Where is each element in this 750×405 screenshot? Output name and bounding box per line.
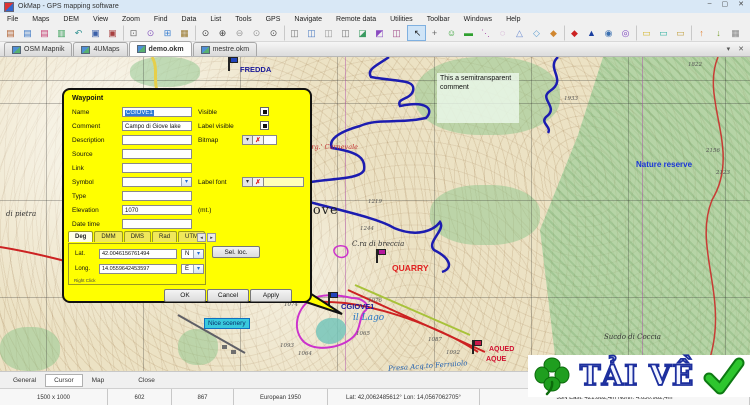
add-map-icon[interactable]: ▤ <box>19 25 36 41</box>
menu-item[interactable]: Zoom <box>115 15 147 24</box>
menu-item[interactable]: Navigate <box>287 15 329 24</box>
latitude-label: Lat. <box>75 251 85 257</box>
reload-map-icon[interactable]: ↶ <box>70 25 87 41</box>
map-tab-icon <box>137 45 146 53</box>
bitmap-clear-icon[interactable]: ✗ <box>253 135 264 145</box>
rotate-map-icon[interactable]: ◉ <box>600 25 617 41</box>
tab-scroll-left-icon[interactable]: ◂ <box>197 233 206 242</box>
map-tab-bar: OSM Mapnik 4UMaps demo.okm mestre.okm <box>0 42 750 57</box>
comment-label: Comment <box>72 123 100 130</box>
map-label: di pietra <box>6 210 36 218</box>
menu-item[interactable]: File <box>0 15 25 24</box>
latitude-input[interactable]: 42.0046156761494 <box>99 249 177 259</box>
label-font-preview <box>264 177 304 187</box>
gps-upload-icon[interactable]: ↑ <box>691 25 710 41</box>
datetime-input[interactable] <box>122 219 192 229</box>
visible-checkbox[interactable] <box>260 107 269 116</box>
status-cell: 867 <box>172 389 234 405</box>
menu-item[interactable]: Windows <box>457 15 499 24</box>
menu-bar: FileMapsDEMViewZoomFindDataListToolsGPSN… <box>0 13 750 25</box>
new-shape-icon[interactable]: ◆ <box>545 25 562 41</box>
minimize-icon[interactable]: – <box>708 0 712 8</box>
data-grid-icon[interactable]: ▦ <box>727 25 744 41</box>
symbol-label: Symbol <box>72 179 94 186</box>
select-location-button[interactable]: Sel. loc. <box>212 246 260 258</box>
datetime-label: Date time <box>72 221 100 228</box>
latitude-hemisphere-select[interactable]: N▾ <box>181 249 204 259</box>
chevron-down-icon[interactable]: ▾ <box>181 178 191 186</box>
upload-data-icon[interactable]: ◪ <box>354 25 371 41</box>
projection-icon[interactable]: ◎ <box>617 25 634 41</box>
link-input[interactable] <box>122 163 192 173</box>
open-workspace-icon[interactable]: ⊞ <box>159 25 176 41</box>
chevron-down-icon[interactable]: ▾ <box>193 250 203 258</box>
watermark-text: TẢI VỀ <box>580 356 694 396</box>
type-input[interactable] <box>122 191 192 201</box>
status-cell: 1500 x 1000 <box>0 389 108 405</box>
area-list-icon[interactable]: ◫ <box>337 25 354 41</box>
map-tab[interactable]: OSM Mapnik <box>4 42 72 56</box>
map-label: 1933 <box>564 96 578 102</box>
waypoint-list-icon[interactable]: ◫ <box>284 25 303 41</box>
label-font-label: Label font <box>198 179 227 186</box>
status-cell: European 1950 <box>234 389 328 405</box>
new-polygon-icon[interactable]: ◇ <box>528 25 545 41</box>
save-as-icon[interactable]: ▣ <box>104 25 121 41</box>
map-label: C.ra di breccia <box>352 240 404 248</box>
menu-item[interactable]: List <box>203 15 228 24</box>
menu-item[interactable]: DEM <box>56 15 86 24</box>
comment-input[interactable]: Campo di Giove lake <box>122 121 192 131</box>
tab-close-icon[interactable]: ✕ <box>738 45 744 53</box>
save-icon[interactable]: ▣ <box>87 25 104 41</box>
status-tab[interactable]: Cursor <box>45 374 83 387</box>
briefcase-icon[interactable]: ▦ <box>176 25 193 41</box>
label-font-clear-icon[interactable]: ✗ <box>253 177 264 187</box>
status-close-button[interactable]: Close <box>129 374 164 387</box>
map-tab[interactable]: mestre.okm <box>193 42 258 56</box>
new-area-icon[interactable]: △ <box>511 25 528 41</box>
chevron-down-icon[interactable]: ▾ <box>193 265 203 273</box>
waypoint-flag-aqueduct[interactable] <box>472 340 482 354</box>
map-label: il Lago <box>353 313 384 323</box>
map-label: AQUED <box>489 346 514 353</box>
map-tab-label: OSM Mapnik <box>24 46 64 53</box>
status-tab[interactable]: General <box>4 374 45 387</box>
toolbar: ▤▤▤▥↶▣▣⊡⊙⊞▦⊙⊕⊖⊙⊙◫◫◫◫◪◩◫↖+☺▬⋱◌△◇◆◆▲◉◎▭▭▭↑… <box>0 25 750 42</box>
menu-item[interactable]: Remote data <box>329 15 383 24</box>
status-cell: Lat: 42,0062485612° Lon: 14,0567062705° <box>328 389 480 405</box>
map-comment-note[interactable]: This a semitransparent comment <box>437 73 519 123</box>
map-label: QUARRY <box>392 263 429 273</box>
label-visible-label: Label visible <box>198 123 234 130</box>
description-label: Description <box>72 137 105 144</box>
right-click-hint: Right Click <box>74 278 96 283</box>
map-label: 1822 <box>688 62 702 68</box>
apply-button[interactable]: Apply <box>250 289 292 302</box>
label-font-dropdown-icon[interactable]: ▾ <box>242 177 253 187</box>
map-tab-label: mestre.okm <box>213 46 250 53</box>
map-list-icon[interactable]: ▥ <box>53 25 70 41</box>
coord-format-tab[interactable]: DMM <box>94 231 122 242</box>
elevation-input[interactable]: 1070 <box>122 205 192 215</box>
download-data-icon[interactable]: ◩ <box>371 25 388 41</box>
map-label: 1093 <box>280 343 294 349</box>
sync-data-icon[interactable]: ◫ <box>388 25 405 41</box>
bitmap-preview <box>264 135 277 145</box>
map-label: AQUE <box>486 356 506 363</box>
zoom-window-icon[interactable]: ⊡ <box>123 25 142 41</box>
type-label: Type <box>72 193 86 200</box>
route-list-icon[interactable]: ◫ <box>303 25 320 41</box>
map-label: 2123 <box>716 170 730 176</box>
waypoint-flag-cgiove1[interactable] <box>328 292 338 306</box>
map-label: 1087 <box>428 337 442 343</box>
longitude-input[interactable]: 14.0559642453597 <box>99 264 177 274</box>
map-label-chip[interactable]: Nice scenery <box>204 318 250 329</box>
status-tab[interactable]: Map <box>83 374 114 387</box>
status-cell: 602 <box>108 389 172 405</box>
map-label: 1244 <box>360 226 374 232</box>
new-route-icon[interactable]: ⋱ <box>477 25 494 41</box>
description-input[interactable] <box>122 135 192 145</box>
name-label: Name <box>72 109 89 116</box>
center-map-icon[interactable]: ◆ <box>564 25 583 41</box>
menu-item[interactable]: Toolbar <box>420 15 457 24</box>
map-tab-label: demo.okm <box>149 46 184 53</box>
pan-tool-icon[interactable]: + <box>426 25 443 41</box>
tab-dropdown-icon[interactable]: ▾ <box>727 45 731 53</box>
okmap-window: OkMap - GPS mapping software – ▢ ✕ FileM… <box>0 0 750 405</box>
dialog-title: Waypoint <box>72 95 103 102</box>
menu-item[interactable]: Maps <box>25 15 56 24</box>
map-label: 1064 <box>298 351 312 357</box>
remove-map-icon[interactable]: ▤ <box>36 25 53 41</box>
map-label: Sucdo di Coccia <box>604 333 661 341</box>
download-watermark: TẢI VỀ <box>528 355 750 397</box>
goto-position-icon[interactable]: ▲ <box>583 25 600 41</box>
longitude-label: Long. <box>75 266 90 272</box>
find-icon[interactable]: ⊙ <box>195 25 214 41</box>
source-input[interactable] <box>122 149 192 159</box>
menu-item[interactable]: Data <box>175 15 204 24</box>
maximize-icon[interactable]: ▢ <box>722 0 729 8</box>
zoom-in-icon[interactable]: ⊕ <box>214 25 231 41</box>
menu-item[interactable]: View <box>86 15 115 24</box>
new-waypoint-icon[interactable]: ☺ <box>443 25 460 41</box>
zoom-scale-icon[interactable]: ⊙ <box>265 25 282 41</box>
coord-format-tab[interactable]: Deg <box>68 231 93 242</box>
label-visible-checkbox[interactable] <box>260 121 269 130</box>
visible-label: Visible <box>198 109 217 116</box>
map-label: FREDDA <box>240 65 271 74</box>
zoom-pan-icon[interactable]: ⊙ <box>142 25 159 41</box>
measure-bearing-icon[interactable]: ▭ <box>672 25 689 41</box>
source-label: Source <box>72 151 93 158</box>
okmap-logo-icon <box>4 2 14 12</box>
map-tab[interactable]: demo.okm <box>129 41 192 56</box>
symbol-select[interactable]: ▾ <box>122 177 192 187</box>
select-pointer-icon[interactable]: ↖ <box>407 25 426 41</box>
clover-icon <box>533 356 571 396</box>
measure-area-icon[interactable]: ▭ <box>655 25 672 41</box>
waypoint-dialog: Waypoint Name CGIOVE1 Visible Comment Ca… <box>62 88 312 303</box>
gps-track-line-2[interactable] <box>544 57 558 133</box>
waypoint-flag-quarry[interactable] <box>376 249 386 263</box>
track-list-icon[interactable]: ◫ <box>320 25 337 41</box>
name-input[interactable]: CGIOVE1 <box>122 107 192 117</box>
map-tab-icon <box>201 46 210 54</box>
map-label: Nature reserve <box>636 160 692 169</box>
map-label: 1219 <box>368 199 382 205</box>
new-label-icon[interactable]: ▬ <box>460 25 477 41</box>
map-tab-label: 4UMaps <box>93 46 119 53</box>
map-tab-icon <box>81 46 90 54</box>
window-title: OkMap - GPS mapping software <box>18 3 119 10</box>
map-label: 1092 <box>446 350 460 356</box>
map-tab-icon <box>12 46 21 54</box>
elevation-label: Elevation <box>72 207 99 214</box>
new-track-icon[interactable]: ◌ <box>494 25 511 41</box>
map-label: 1065 <box>356 331 370 337</box>
measure-distance-icon[interactable]: ▭ <box>636 25 655 41</box>
bitmap-label: Bitmap <box>198 137 218 144</box>
menu-item[interactable]: GPS <box>259 15 288 24</box>
gps-download-icon[interactable]: ↓ <box>710 25 727 41</box>
menu-item[interactable]: Utilities <box>383 15 420 24</box>
coord-format-tab[interactable]: Rad <box>152 231 177 242</box>
map-label: 2156 <box>706 148 720 154</box>
open-map-icon[interactable]: ▤ <box>2 25 19 41</box>
checkmark-icon <box>703 356 745 396</box>
cancel-button[interactable]: Cancel <box>207 289 249 302</box>
ok-button[interactable]: OK <box>164 289 206 302</box>
menu-item[interactable]: Find <box>147 15 175 24</box>
waypoint-flag-fredda[interactable] <box>228 57 238 71</box>
longitude-hemisphere-select[interactable]: E▾ <box>181 264 204 274</box>
elevation-unit: (mt.) <box>198 207 211 214</box>
magenta-area-small <box>334 246 348 258</box>
link-label: Link <box>72 165 84 172</box>
red-boundary-line <box>706 57 723 367</box>
map-label: 1076 <box>368 298 382 304</box>
map-tab[interactable]: 4UMaps <box>73 42 127 56</box>
coordinates-panel: Lat. 42.0046156761494 N▾ Long. 14.055964… <box>68 243 206 285</box>
coord-format-tab[interactable]: DMS <box>124 231 151 242</box>
close-icon[interactable]: ✕ <box>738 0 744 8</box>
tab-scroll-right-icon[interactable]: ▸ <box>207 233 216 242</box>
menu-item[interactable]: Tools <box>228 15 258 24</box>
title-bar: OkMap - GPS mapping software – ▢ ✕ <box>0 0 750 13</box>
zoom-out-icon[interactable]: ⊖ <box>231 25 248 41</box>
bitmap-dropdown-icon[interactable]: ▾ <box>242 135 253 145</box>
menu-item[interactable]: Help <box>499 15 527 24</box>
zoom-previous-icon[interactable]: ⊙ <box>248 25 265 41</box>
